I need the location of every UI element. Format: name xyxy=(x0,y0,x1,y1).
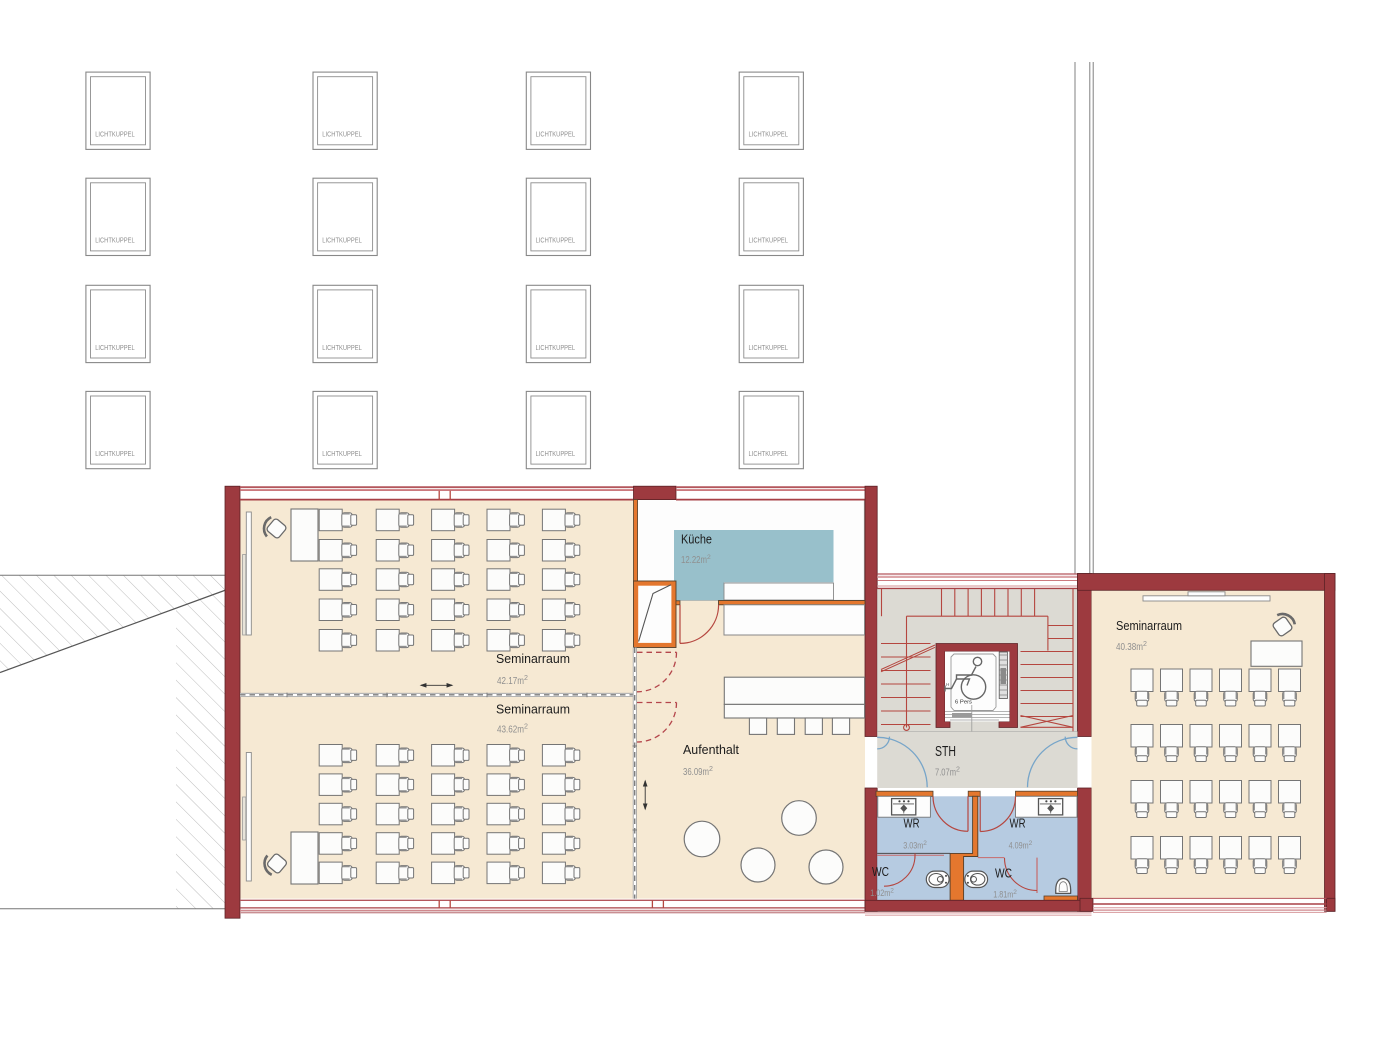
svg-text:36.09m2: 36.09m2 xyxy=(683,765,713,778)
svg-text:STH: STH xyxy=(935,744,956,760)
svg-text:WC: WC xyxy=(872,865,889,879)
svg-text:Seminarraum: Seminarraum xyxy=(1116,618,1182,633)
svg-text:LICHTKUPPEL: LICHTKUPPEL xyxy=(322,132,362,139)
svg-text:Seminarraum: Seminarraum xyxy=(496,651,570,666)
svg-text:12.22m2: 12.22m2 xyxy=(681,554,711,566)
svg-text:LICHTKUPPEL: LICHTKUPPEL xyxy=(749,132,789,139)
svg-text:LICHTKUPPEL: LICHTKUPPEL xyxy=(536,451,576,458)
svg-text:Seminarraum: Seminarraum xyxy=(496,702,570,717)
svg-text:LICHTKUPPEL: LICHTKUPPEL xyxy=(95,132,135,139)
svg-text:H: H xyxy=(946,682,949,687)
svg-text:LICHTKUPPEL: LICHTKUPPEL xyxy=(95,451,135,458)
svg-text:LICHTKUPPEL: LICHTKUPPEL xyxy=(322,451,362,458)
svg-text:WR: WR xyxy=(904,817,920,831)
svg-text:LICHTKUPPEL: LICHTKUPPEL xyxy=(95,238,135,245)
svg-text:LICHTKUPPEL: LICHTKUPPEL xyxy=(322,238,362,245)
svg-text:42.17m2: 42.17m2 xyxy=(497,674,528,687)
svg-text:WR: WR xyxy=(1010,817,1026,831)
svg-text:LICHTKUPPEL: LICHTKUPPEL xyxy=(749,238,789,245)
svg-text:Aufenthalt: Aufenthalt xyxy=(683,742,739,757)
svg-text:43.62m2: 43.62m2 xyxy=(497,723,528,736)
svg-text:LICHTKUPPEL: LICHTKUPPEL xyxy=(536,345,576,352)
svg-text:LICHTKUPPEL: LICHTKUPPEL xyxy=(95,345,135,352)
svg-text:Küche: Küche xyxy=(681,533,712,547)
svg-text:LICHTKUPPEL: LICHTKUPPEL xyxy=(322,345,362,352)
svg-text:WC: WC xyxy=(995,867,1012,881)
svg-text:LICHTKUPPEL: LICHTKUPPEL xyxy=(749,451,789,458)
svg-text:40.38m2: 40.38m2 xyxy=(1116,640,1147,653)
svg-text:6 Pers: 6 Pers xyxy=(955,700,972,706)
svg-text:LICHTKUPPEL: LICHTKUPPEL xyxy=(749,345,789,352)
svg-text:LICHTKUPPEL: LICHTKUPPEL xyxy=(536,238,576,245)
svg-text:LICHTKUPPEL: LICHTKUPPEL xyxy=(536,132,576,139)
